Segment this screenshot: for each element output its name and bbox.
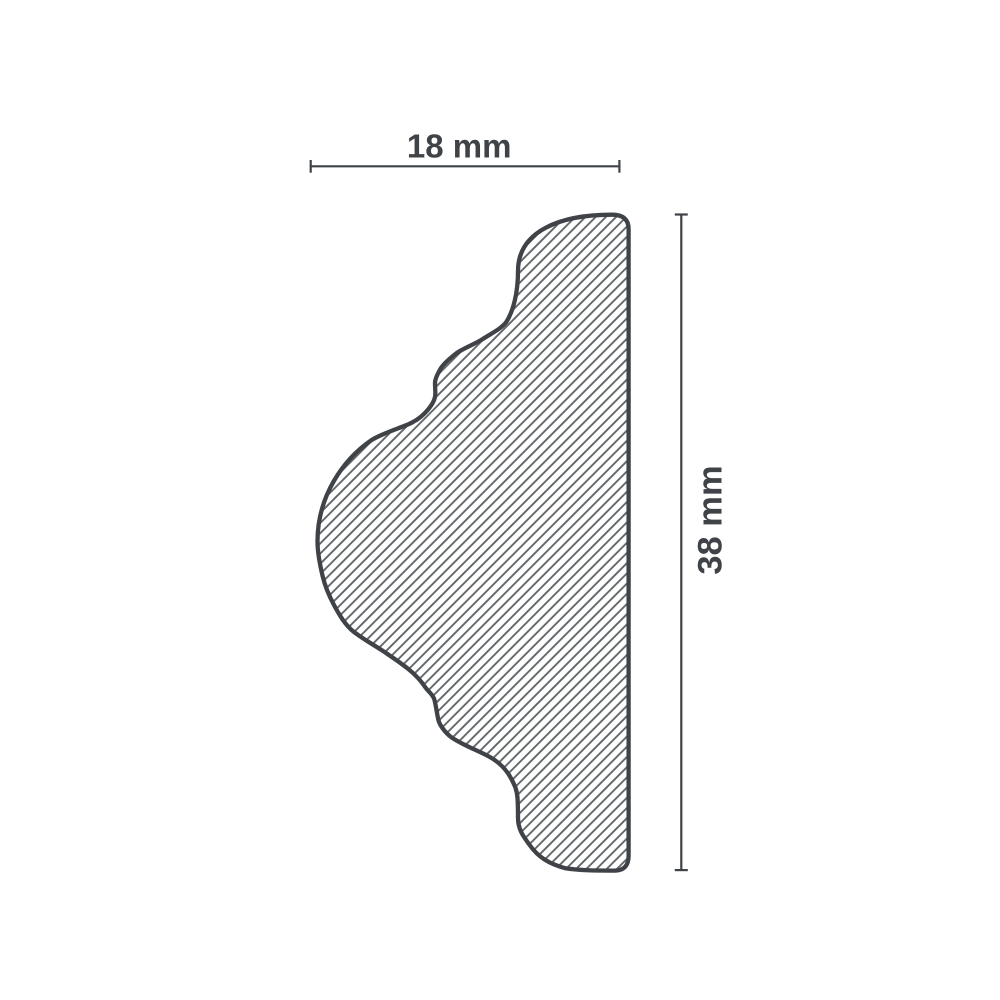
svg-text:18 mm: 18 mm [407, 128, 512, 165]
svg-text:38 mm: 38 mm [692, 465, 730, 574]
